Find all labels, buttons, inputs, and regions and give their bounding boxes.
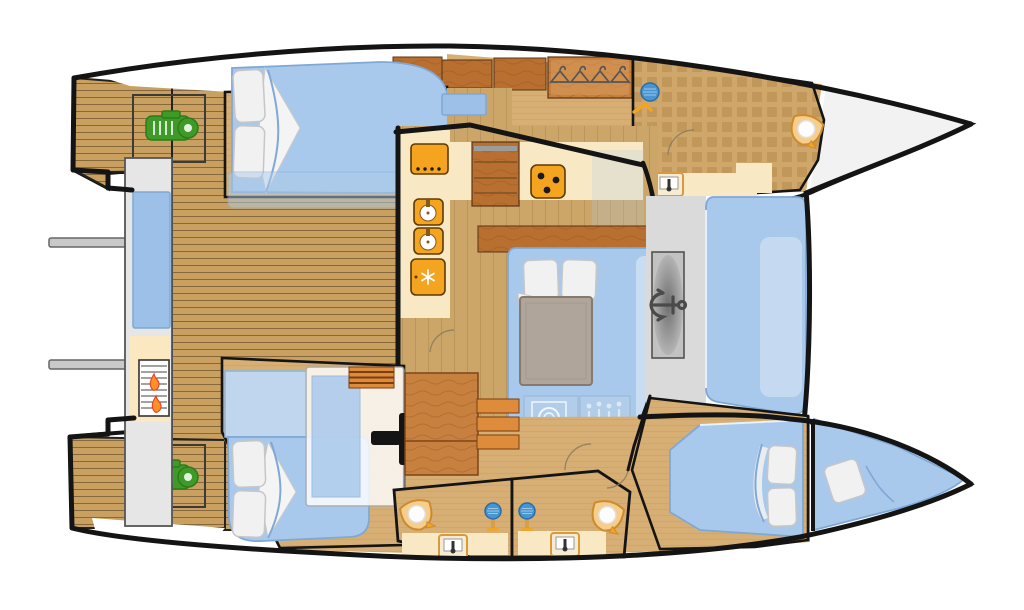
deck-plan-svg: Catamaran interior deck plan [0,0,1024,610]
galley-locker-2 [442,60,492,88]
bathroom-counter-block [736,163,772,193]
pillow [232,490,266,537]
cockpit-overlay [306,367,413,506]
bathroom-forward [512,471,630,557]
bbq-grill-icon [139,360,169,416]
davit-aft-starboard [49,360,127,369]
pillow [232,440,266,487]
hull-steps-icon [477,399,519,449]
davit-aft-port [49,238,127,247]
pillow [523,259,558,300]
pillow [561,259,596,300]
catamaran-deck-plan: Catamaran interior deck plan [0,0,1024,610]
cooktop-3-burner-icon [531,165,565,198]
galley-sink-icon [414,199,443,225]
anchor-windlass [651,252,686,358]
pillow [767,445,797,484]
galley-drawers [472,142,519,206]
shower-icon [641,83,659,101]
deck-hatch [442,94,486,115]
galley-locker-3 [494,58,546,90]
bed-starboard-forward [670,420,803,537]
wardrobe [548,57,632,98]
foredeck-lounge [706,197,806,414]
galley-sink-icon [414,228,443,254]
pillow [767,488,796,527]
cooktop-4-burner-icon [411,144,448,174]
companionway-steps-icon [349,367,394,388]
pillow [233,125,265,178]
bathroom-aft [394,479,512,558]
fridge-icon [411,259,445,295]
toilet-icon-port [655,173,683,196]
toilet-icon [551,533,579,556]
toilet-icon [439,535,467,558]
transom-window [133,192,170,328]
pillow [233,69,266,122]
lounge-table [520,297,592,385]
cabin-furniture [405,373,478,475]
